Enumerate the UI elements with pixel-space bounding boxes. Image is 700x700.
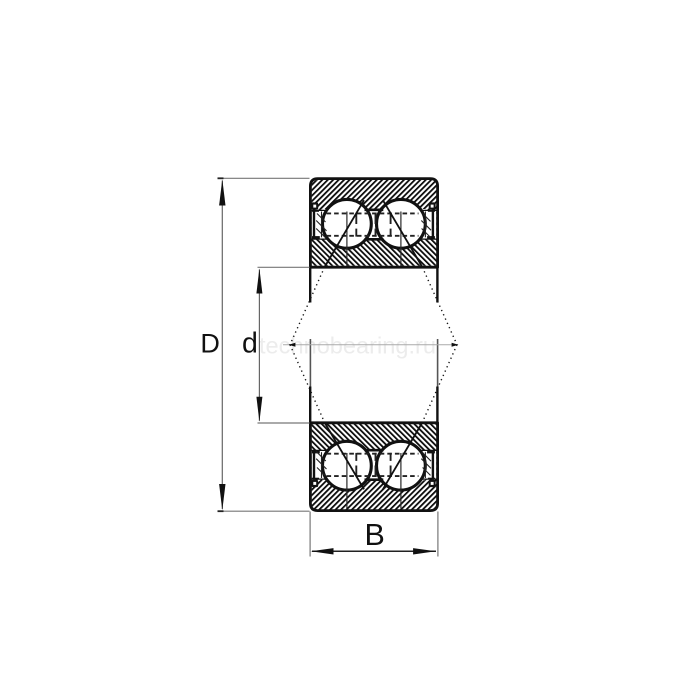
svg-text:d: d [242, 328, 258, 360]
svg-text:D: D [200, 329, 220, 359]
svg-text:B: B [365, 518, 385, 552]
svg-text:technobearing.ru: technobearing.ru [259, 332, 436, 358]
